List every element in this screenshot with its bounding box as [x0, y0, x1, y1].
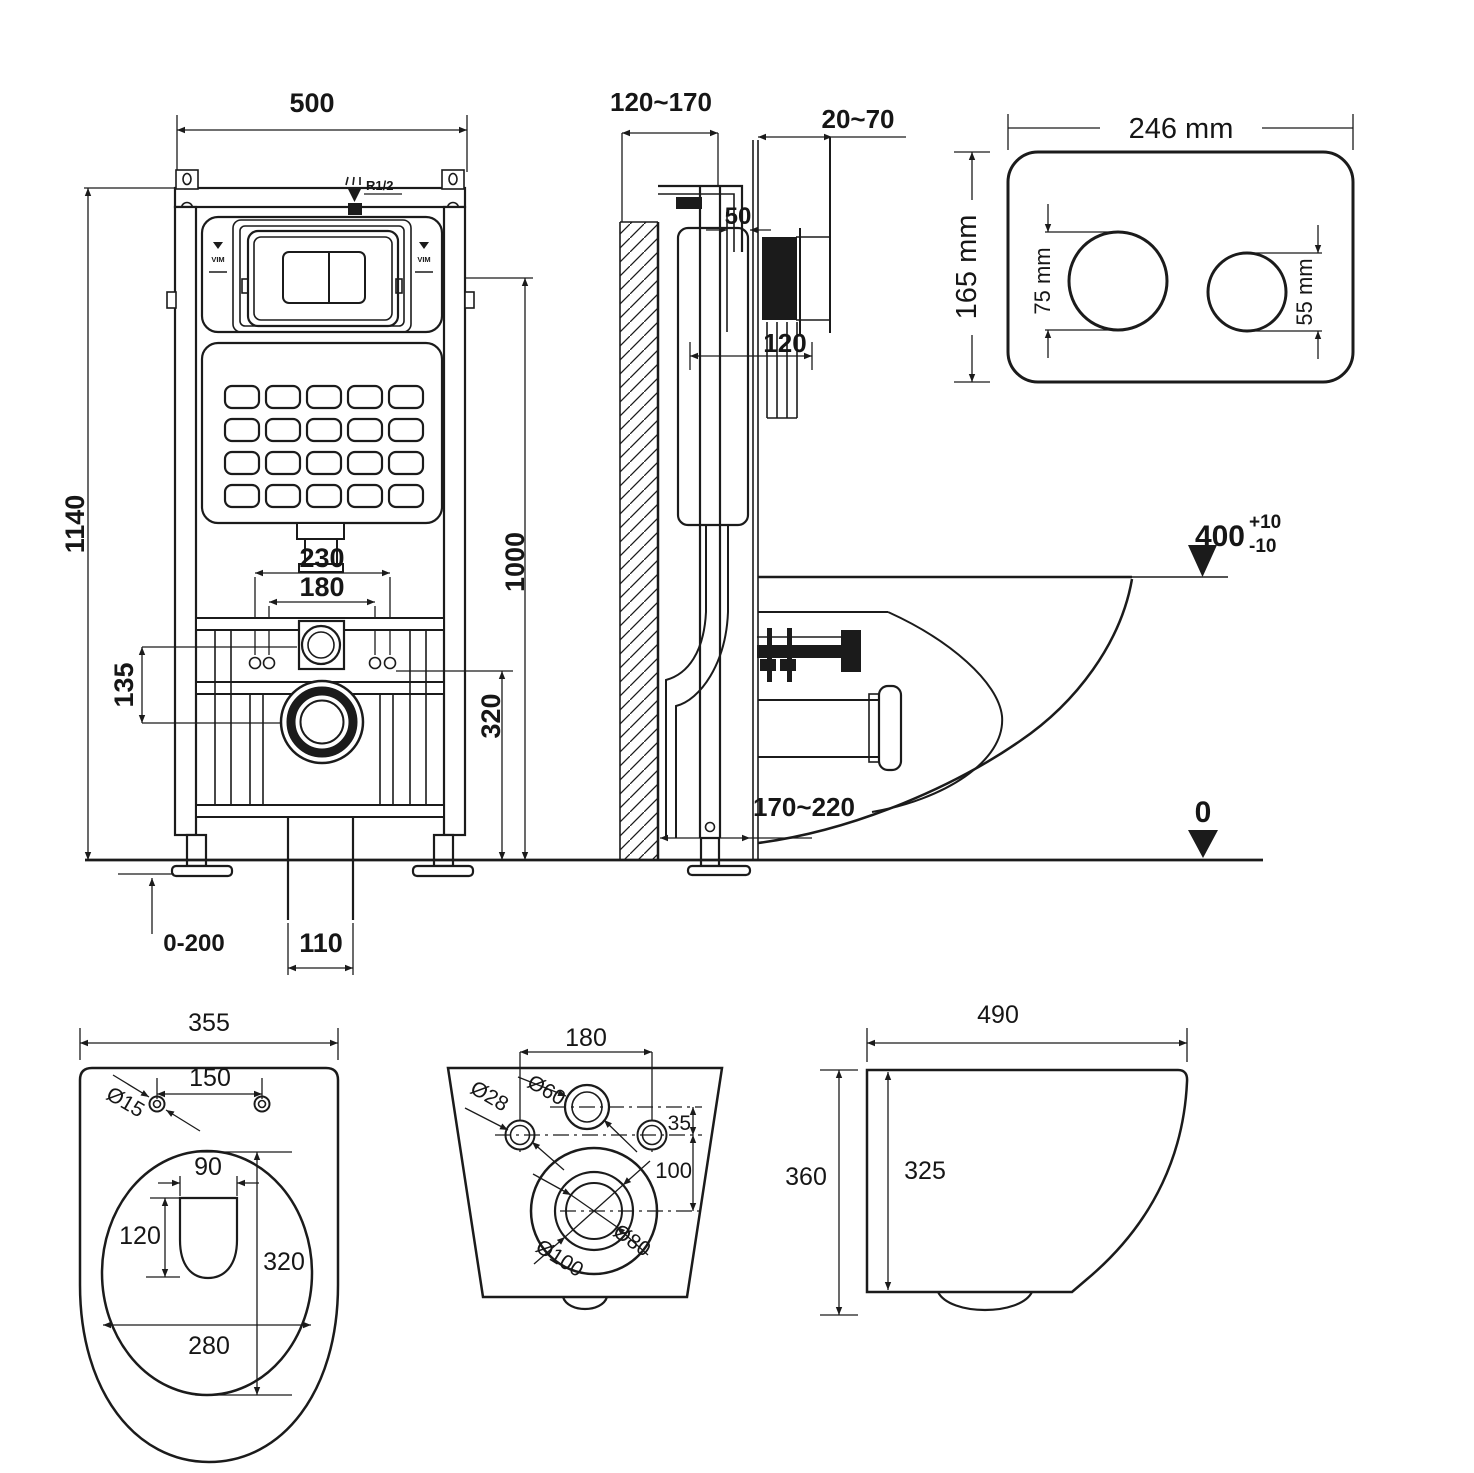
dim-outlet-height: 320	[476, 693, 506, 738]
dim-outlet-spacing: 230	[299, 543, 344, 573]
technical-drawing-sheet: 500 1140 1000 R1/2	[0, 0, 1474, 1473]
dim-fixing-dia: Ø28	[466, 1076, 512, 1116]
dim-seat-hole-dia: Ø15	[102, 1082, 148, 1122]
inlet-fitting	[299, 621, 344, 669]
frame-top-rail	[175, 188, 465, 207]
dim-plate-width: 246 mm	[1129, 113, 1234, 145]
flush-housing-side	[762, 237, 797, 320]
dim-frame-height: 1140	[60, 495, 90, 554]
frame-front-view: 500 1140 1000 R1/2	[60, 88, 533, 975]
dim-inlet-offset: 135	[109, 662, 139, 707]
dim-frame-depth: 120	[763, 328, 806, 358]
dim-plate-height-label: 165 mm	[951, 215, 983, 320]
dim-flush-opening-depth: 120	[119, 1222, 161, 1250]
dim-bowl-opening-width: 280	[188, 1332, 230, 1360]
drawing-canvas: 500 1140 1000 R1/2	[0, 0, 1474, 1473]
bowl-top-view: 355 150 Ø15 90 120 320 280	[80, 1009, 338, 1462]
bowl-side-view: 490 360 325	[785, 1001, 1187, 1315]
frame-rail-right	[444, 207, 465, 835]
dim-outlet-drop: 100	[655, 1158, 692, 1183]
dim-inlet-offset-rear: 35	[668, 1112, 691, 1135]
dim-seat-level-tol-minus: -10	[1249, 536, 1276, 557]
brand-mark-left: VIM	[211, 255, 224, 264]
level-marker-seat	[1188, 545, 1217, 577]
frame-rail-left	[175, 207, 196, 835]
drain-outlet-front	[281, 681, 363, 763]
dim-bowl-depth: 490	[977, 1001, 1019, 1029]
fixing-bolts-side	[757, 628, 861, 682]
dim-bowl-height: 360	[785, 1163, 827, 1191]
dim-fixing-spacing: 180	[299, 572, 344, 602]
brand-mark-right: VIM	[417, 255, 430, 264]
supply-thread-label: R1/2	[366, 178, 393, 193]
dim-drain-offset: 170~220	[753, 792, 855, 822]
dim-bowl-inner-height: 325	[904, 1157, 946, 1185]
dim-big-button: 75 mm	[1030, 247, 1055, 314]
cistern-side-profile	[678, 228, 748, 525]
bowl-rear-view: 180 35 100 Ø28 Ø60 Ø80	[448, 1024, 722, 1309]
level-marker-floor	[1188, 830, 1218, 858]
dim-rear-fixing-spacing: 180	[565, 1024, 607, 1052]
dim-bowl-opening-length: 320	[263, 1248, 305, 1276]
dim-install-depth: 120~170	[610, 87, 712, 117]
dim-seat-hole-spacing: 150	[189, 1064, 231, 1092]
cistern-body	[202, 343, 442, 523]
dim-plate-height: 1000	[500, 532, 530, 592]
dim-small-button: 55 mm	[1292, 258, 1317, 325]
dim-flush-opening-width: 90	[194, 1153, 222, 1181]
dim-floor-level: 0	[1195, 796, 1212, 829]
dim-foot-adjust: 0-200	[163, 930, 224, 957]
dim-inlet-dia: Ø60	[523, 1070, 569, 1110]
dim-bowl-width: 355	[188, 1009, 230, 1037]
dim-plate-depth: 50	[725, 203, 752, 230]
cistern-upper-housing	[202, 217, 442, 332]
wall-section-hatch	[620, 222, 658, 860]
dim-finish-thickness: 20~70	[821, 104, 894, 134]
dim-frame-width: 500	[289, 88, 334, 118]
outlet-flange	[879, 686, 901, 770]
dim-seat-level-tol-plus: +10	[1249, 512, 1281, 533]
flush-plate-view: 246 mm 165 mm 75 mm 55 mm	[951, 113, 1353, 382]
flush-water-channel	[180, 1198, 237, 1278]
dim-duct-width: 110	[299, 928, 343, 958]
